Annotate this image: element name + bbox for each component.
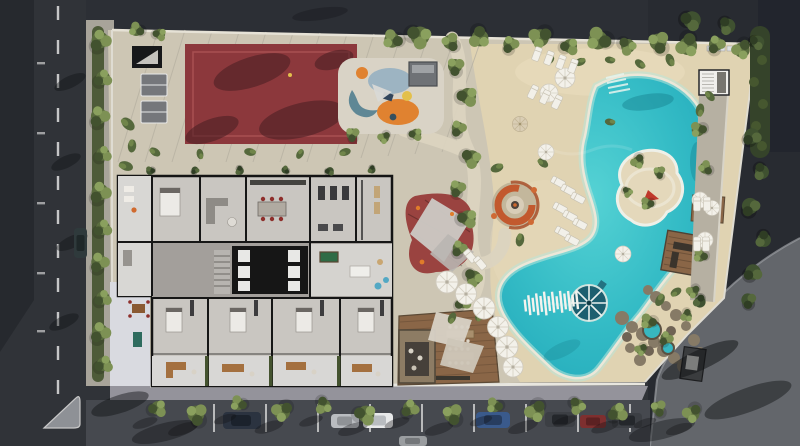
pool-umbrella <box>496 336 518 358</box>
car <box>399 436 427 446</box>
shade-sail-play-mat <box>406 194 474 274</box>
stair-structure <box>699 70 729 95</box>
site-plan-canvas <box>0 0 800 446</box>
paver-plaza <box>0 0 34 352</box>
sun-lounger <box>694 237 701 251</box>
playground <box>338 58 444 134</box>
side-patios <box>118 176 152 296</box>
aerial-site-render <box>0 0 800 446</box>
sun-lounger <box>703 237 710 251</box>
sun-lounger <box>694 197 701 211</box>
pool-umbrella <box>473 297 495 319</box>
pool-umbrella <box>538 144 554 160</box>
pool-umbrella <box>488 317 509 338</box>
pool-umbrella <box>456 284 477 305</box>
pool-umbrella <box>615 246 631 262</box>
car <box>74 228 87 258</box>
sun-lounger <box>704 197 711 211</box>
pool-umbrella <box>436 271 458 293</box>
play-structure-orange <box>377 99 419 125</box>
pool-umbrella <box>512 116 527 131</box>
building-floorplan <box>118 176 392 386</box>
pool-umbrella <box>503 357 523 377</box>
playground-pergola <box>409 62 437 86</box>
bottom-sidewalk <box>110 386 648 400</box>
stairwell <box>214 250 230 294</box>
entry-pergola <box>132 46 162 68</box>
